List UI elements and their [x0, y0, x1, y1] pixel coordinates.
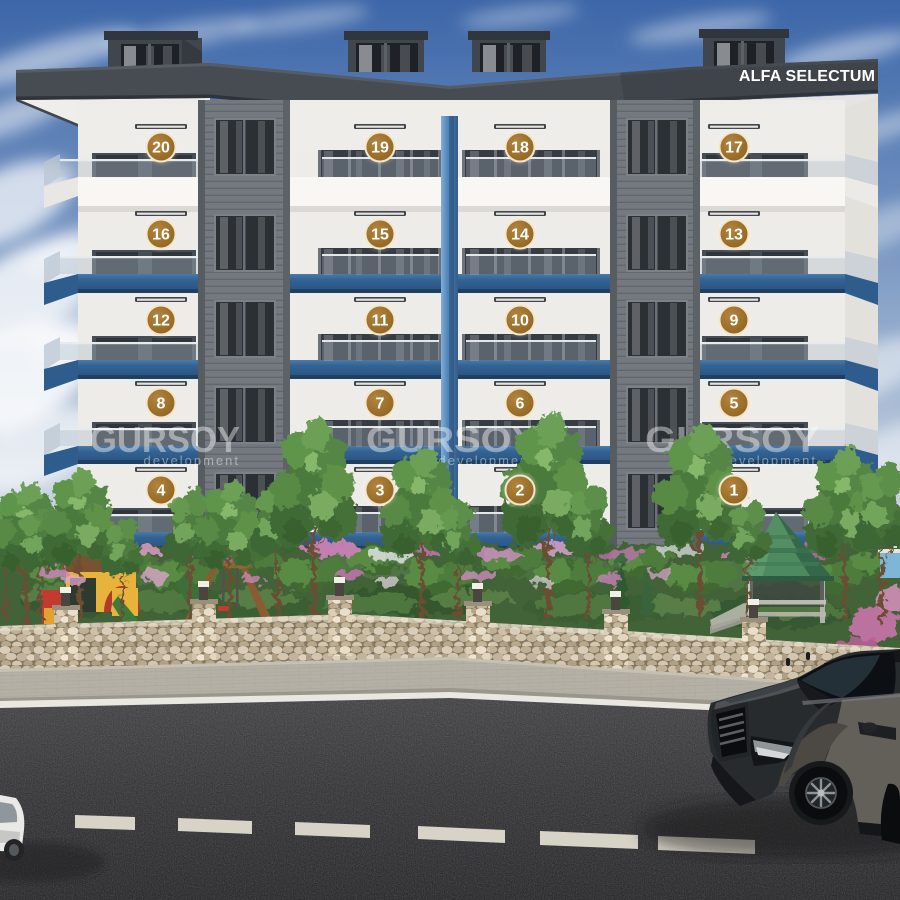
svg-text:ALFA SELECTUM: ALFA SELECTUM — [739, 68, 875, 85]
svg-text:14: 14 — [511, 227, 529, 244]
svg-text:17: 17 — [725, 140, 743, 157]
svg-text:3: 3 — [376, 483, 385, 500]
svg-text:1: 1 — [730, 483, 739, 500]
svg-text:9: 9 — [730, 313, 739, 330]
svg-text:12: 12 — [152, 313, 170, 330]
svg-text:4: 4 — [157, 483, 166, 500]
svg-text:15: 15 — [371, 227, 389, 244]
svg-text:7: 7 — [376, 396, 385, 413]
svg-text:20: 20 — [152, 140, 170, 157]
svg-text:18: 18 — [511, 140, 529, 157]
svg-text:11: 11 — [372, 313, 389, 330]
svg-text:6: 6 — [516, 396, 525, 413]
svg-text:13: 13 — [725, 227, 743, 244]
svg-text:development: development — [144, 453, 240, 468]
svg-text:8: 8 — [157, 396, 166, 413]
svg-text:19: 19 — [371, 140, 389, 157]
svg-text:10: 10 — [511, 313, 529, 330]
svg-text:5: 5 — [730, 396, 739, 413]
svg-text:16: 16 — [152, 227, 170, 244]
svg-text:2: 2 — [516, 483, 525, 500]
svg-text:development: development — [721, 453, 817, 468]
